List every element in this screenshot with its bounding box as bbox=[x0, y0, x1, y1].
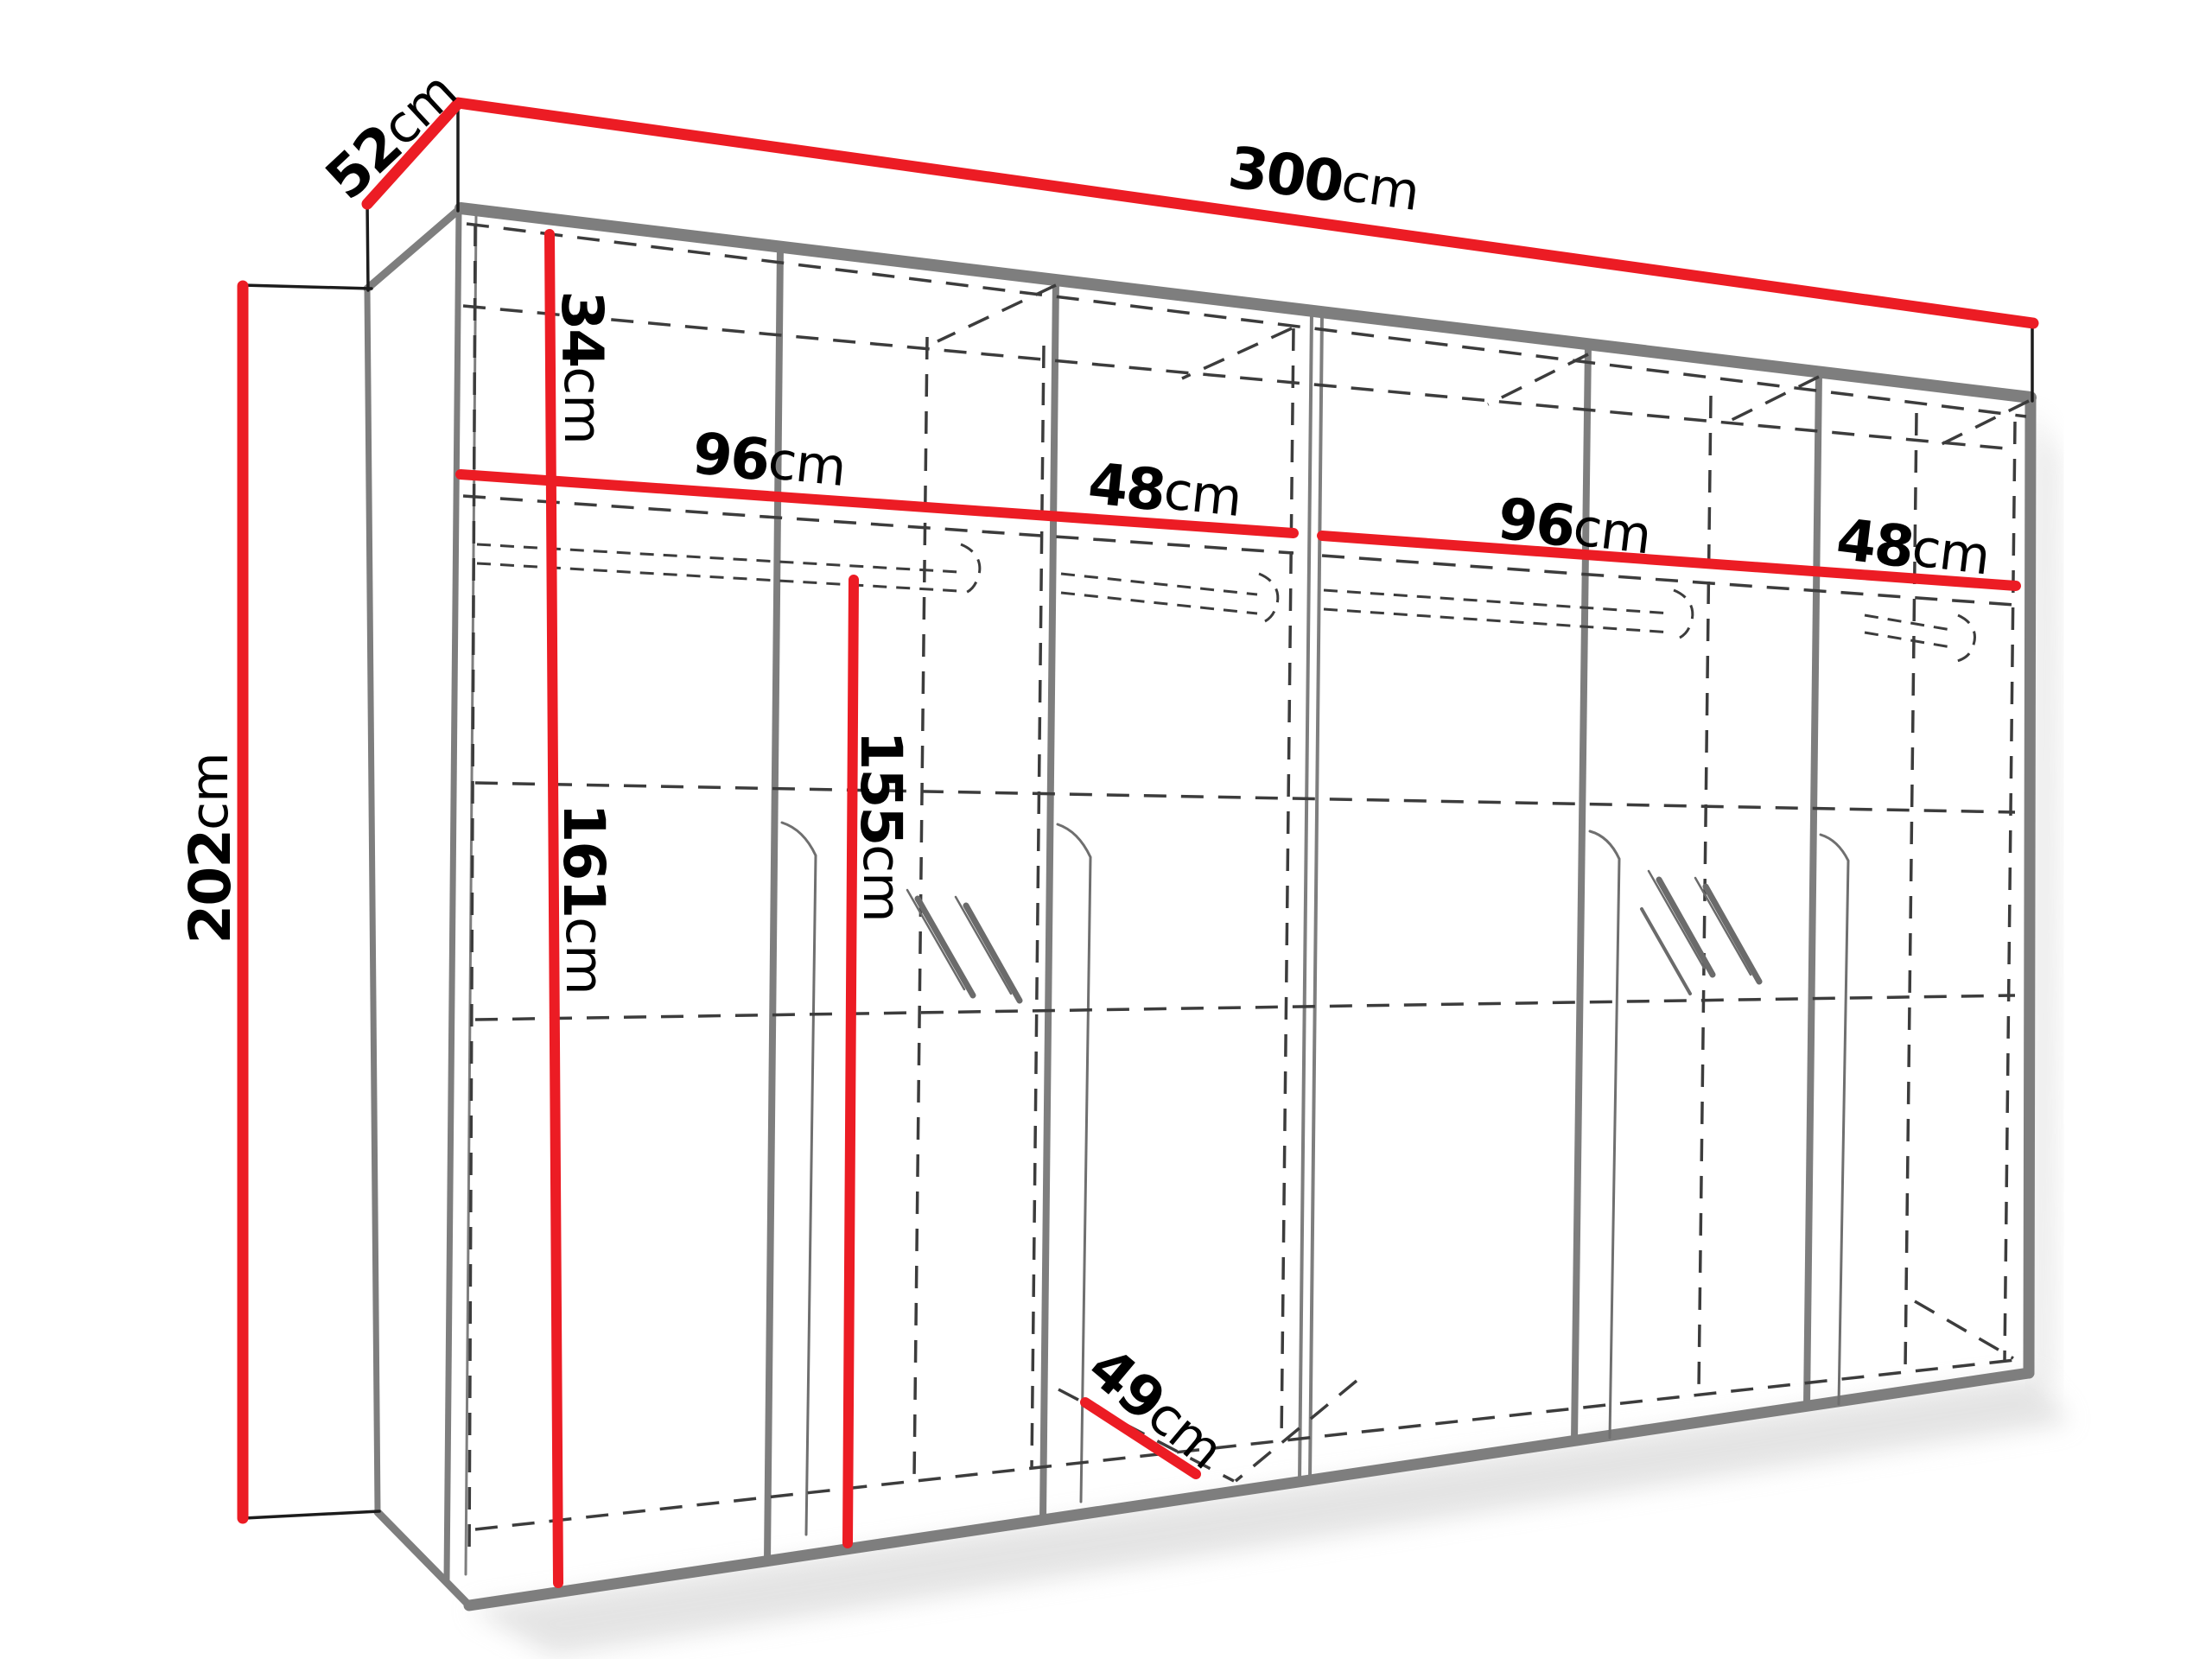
door-edge-curve-3 bbox=[1590, 831, 1619, 1438]
mirror-glint bbox=[966, 906, 1020, 1001]
rail-4-top bbox=[1865, 615, 1956, 631]
label-hanging-161: 161cm bbox=[551, 803, 618, 994]
label-height-202: 202cm bbox=[177, 753, 244, 944]
partition-pair-b bbox=[1310, 313, 1322, 1479]
door-divider-2 bbox=[1043, 280, 1056, 1519]
right-front-edge bbox=[2029, 397, 2031, 1373]
diagram-canvas: 300cm 52cm 202cm 34cm 96cm 48cm 96cm 48c… bbox=[0, 0, 2212, 1659]
mirror-glint bbox=[1649, 871, 1704, 968]
right-mirror-icon bbox=[1642, 871, 1759, 994]
top-front-edge bbox=[461, 208, 2031, 397]
label-depth-52: 52cm bbox=[313, 59, 470, 212]
inner-right-wall bbox=[2005, 422, 2015, 1360]
side-panel-bottom-edge bbox=[378, 1512, 469, 1605]
rail-4-bottom bbox=[1865, 632, 1956, 648]
back-partition-3 bbox=[1281, 328, 1294, 1441]
rail-3-bracket bbox=[1673, 590, 1693, 640]
rail-2-top bbox=[1061, 574, 1257, 594]
depth-diagonal-bottom-2 bbox=[1236, 1381, 1357, 1481]
side-panel-back-edge bbox=[367, 289, 378, 1512]
rail-3-top bbox=[1324, 590, 1672, 613]
mirrors bbox=[907, 871, 1759, 1001]
mid-shelf-line-2 bbox=[475, 995, 2015, 1020]
partition-pair-a bbox=[1300, 312, 1312, 1481]
depth-diagonal-bottom-right bbox=[1915, 1301, 2013, 1358]
wardrobe-dimension-diagram: 300cm 52cm 202cm 34cm 96cm 48cm 96cm 48c… bbox=[0, 0, 2212, 1659]
label-hanging-155: 155cm bbox=[849, 730, 915, 921]
rail-2-bracket bbox=[1258, 574, 1278, 624]
extension-height-top bbox=[243, 285, 372, 289]
left-front-edge bbox=[447, 208, 459, 1580]
door-edge-curve-4 bbox=[1821, 835, 1848, 1404]
door-edge-curve-1 bbox=[782, 823, 816, 1535]
side-panel-top-edge bbox=[367, 208, 461, 289]
mirror-glint bbox=[1706, 887, 1759, 982]
rail-3-bottom bbox=[1324, 609, 1672, 632]
label-top-shelf-34: 34cm bbox=[550, 290, 616, 443]
mirror-glint bbox=[907, 890, 964, 989]
rail-4-bracket bbox=[1957, 615, 1974, 661]
bottom-front-edge bbox=[469, 1373, 2029, 1605]
extension-lines bbox=[243, 100, 2032, 1518]
door-divider-4 bbox=[1807, 372, 1819, 1406]
floor-shadow bbox=[469, 1376, 2070, 1656]
interior-top-edge-front bbox=[467, 224, 2026, 416]
extension-depth bbox=[367, 200, 368, 290]
mid-shelf-line-1 bbox=[475, 783, 2015, 812]
rail-1-bracket bbox=[959, 544, 980, 594]
dimension-line-155 bbox=[848, 580, 854, 1543]
rail-2-bottom bbox=[1061, 593, 1257, 613]
extension-height-bottom bbox=[245, 1511, 379, 1518]
depth-diagonal-top-1 bbox=[938, 285, 1056, 341]
label-section3-96: 96cm bbox=[1494, 485, 1654, 569]
shadows bbox=[469, 406, 2070, 1656]
depth-diagonal-top-3 bbox=[1488, 354, 1588, 404]
left-mirror-icon bbox=[907, 890, 1020, 1001]
depth-diagonal-top-2 bbox=[1182, 328, 1292, 378]
